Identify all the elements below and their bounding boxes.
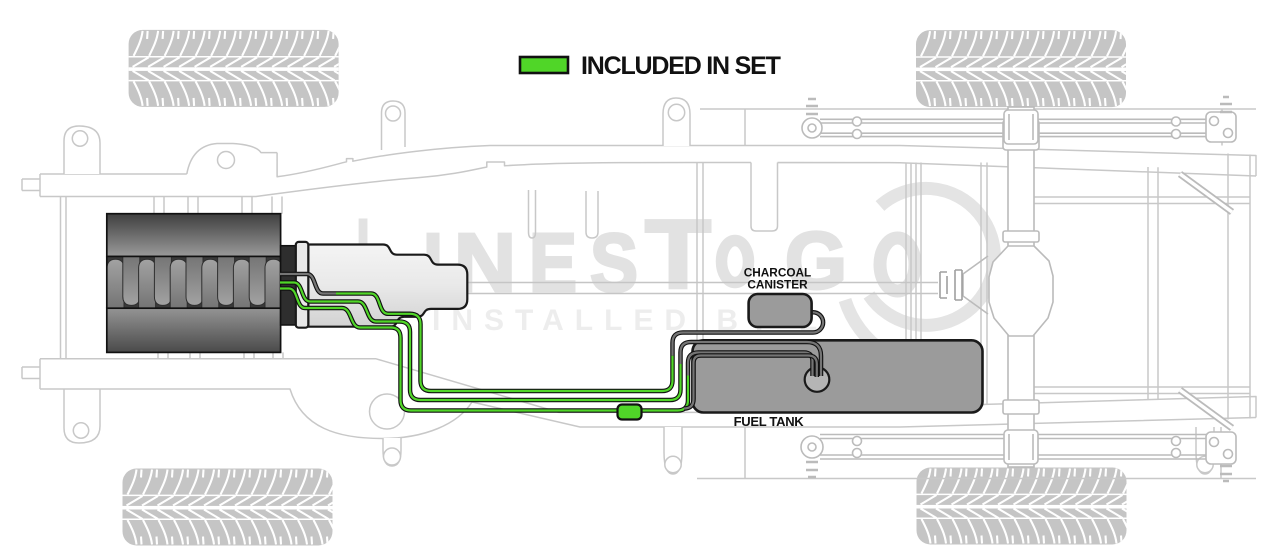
- svg-text:CANISTER: CANISTER: [747, 277, 808, 291]
- svg-text:T: T: [645, 200, 711, 309]
- svg-text:INCLUDED IN SET: INCLUDED IN SET: [581, 52, 781, 80]
- svg-text:FUEL TANK: FUEL TANK: [734, 414, 805, 429]
- svg-text:G: G: [785, 216, 847, 306]
- svg-text:S: S: [590, 216, 638, 309]
